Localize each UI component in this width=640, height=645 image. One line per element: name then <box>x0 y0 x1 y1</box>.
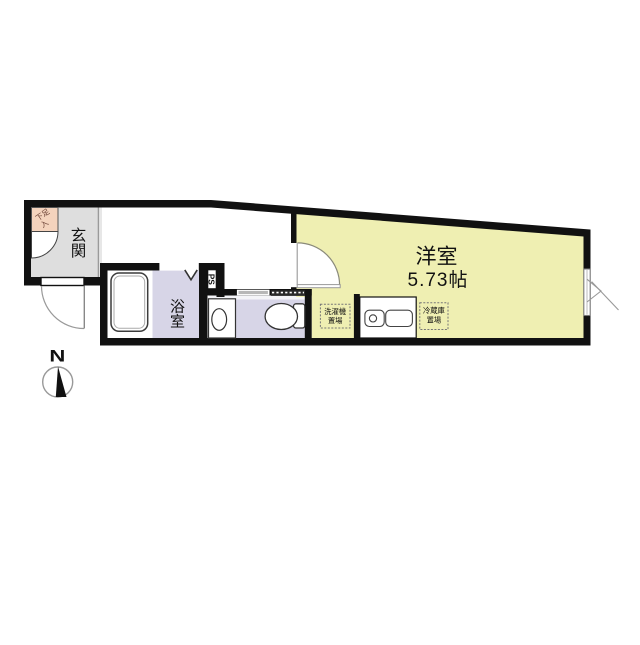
svg-text:5.73帖: 5.73帖 <box>408 269 469 291</box>
svg-text:PS: PS <box>207 274 217 286</box>
svg-text:室: 室 <box>170 314 185 331</box>
svg-text:玄: 玄 <box>71 227 87 245</box>
svg-text:置場: 置場 <box>328 316 343 325</box>
svg-text:関: 関 <box>71 243 87 260</box>
svg-text:洗濯機: 洗濯機 <box>324 307 347 316</box>
svg-text:置場: 置場 <box>427 316 442 325</box>
svg-text:洋室: 洋室 <box>416 246 458 269</box>
svg-text:N: N <box>49 347 65 366</box>
svg-text:冷蔵庫: 冷蔵庫 <box>423 306 445 315</box>
